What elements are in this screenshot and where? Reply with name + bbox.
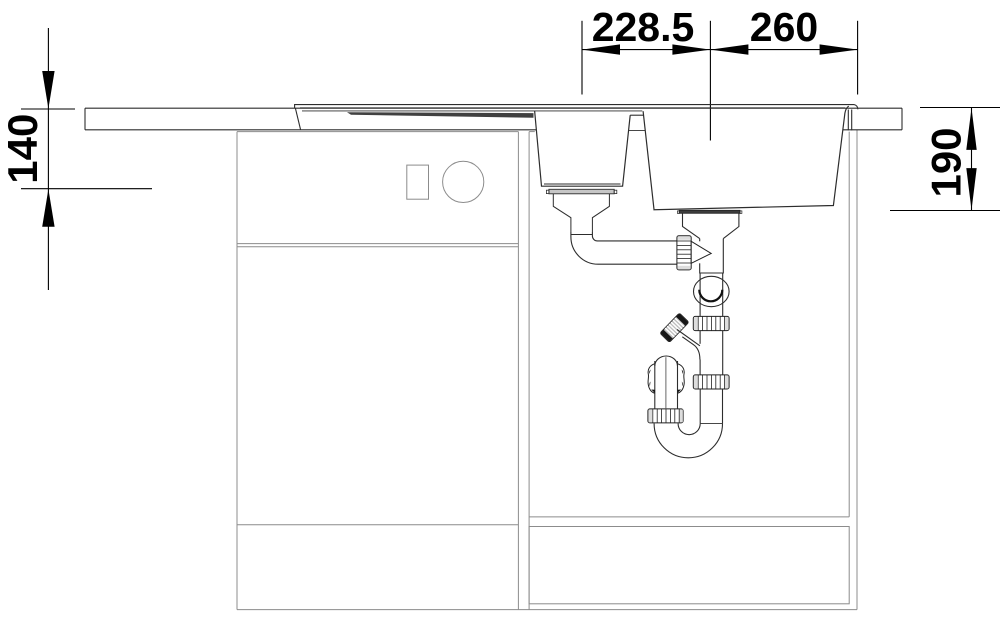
svg-text:228.5: 228.5 <box>592 4 695 50</box>
svg-text:140: 140 <box>0 114 46 184</box>
svg-text:190: 190 <box>923 127 970 197</box>
svg-text:260: 260 <box>750 4 818 50</box>
